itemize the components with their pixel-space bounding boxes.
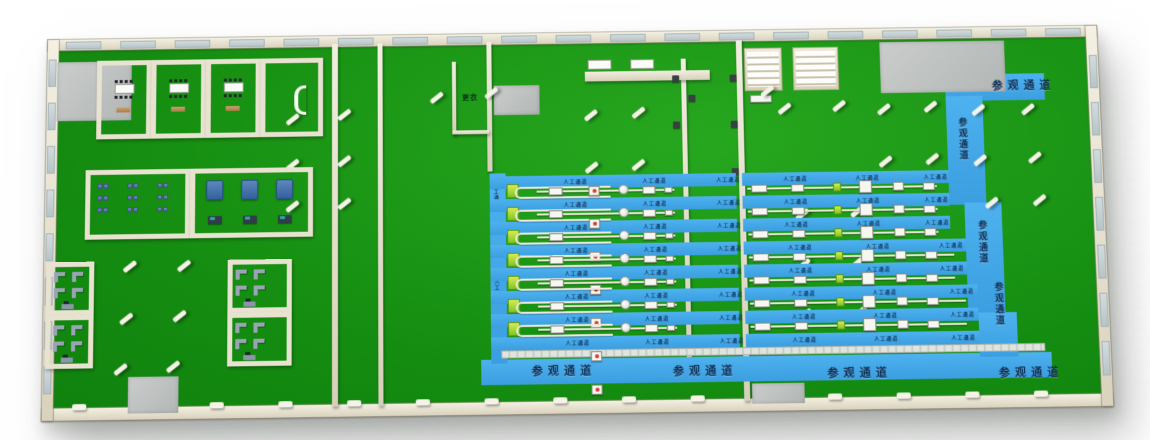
window: [447, 36, 483, 44]
machine: [666, 279, 674, 285]
sideboard: [116, 107, 130, 112]
conveyor-belt: [748, 208, 938, 213]
machine: [645, 324, 658, 332]
window: [1045, 28, 1081, 36]
l-shaped-desk: [53, 341, 64, 345]
tank-machine: [620, 276, 630, 286]
machine-red-indicator: [591, 385, 602, 395]
chair: [115, 80, 118, 83]
machine: [926, 274, 938, 282]
machine-red-indicator: [589, 219, 600, 229]
machine: [925, 251, 937, 259]
machine-green-panel: [833, 183, 841, 192]
visitor-corridor-label: 参观通道: [992, 77, 1056, 94]
wall-post: [278, 401, 292, 407]
l-shaped-desk: [235, 323, 246, 327]
chair: [229, 94, 232, 97]
visitor-corridor-label: 参观通道: [532, 362, 597, 379]
chair: [115, 96, 118, 99]
storage-rack: [97, 196, 102, 201]
storage-rack: [133, 207, 138, 212]
conveyor-belt: [748, 231, 938, 236]
window: [1089, 55, 1098, 88]
conveyor-belt: [749, 277, 955, 282]
wall-post: [416, 399, 430, 405]
pump-machine: [243, 215, 257, 223]
wall-post: [485, 398, 499, 404]
window: [719, 32, 755, 40]
machine: [667, 325, 675, 331]
machine-room: [190, 167, 313, 238]
computer-desk: [243, 355, 255, 360]
chair: [174, 95, 177, 98]
wall-post: [210, 402, 224, 408]
window: [773, 32, 809, 40]
worker-corridor-label: 人工通道: [566, 339, 590, 346]
storage-rack: [103, 196, 108, 201]
chair: [234, 94, 237, 97]
press-machine: [860, 226, 873, 239]
machine: [549, 233, 563, 241]
machine: [550, 325, 564, 333]
window: [556, 35, 592, 43]
chair: [174, 79, 177, 82]
pillar: [166, 360, 181, 373]
worker-corridor-label: 人工通道: [565, 316, 589, 323]
machine: [795, 322, 808, 330]
machine: [667, 302, 675, 308]
wall-post: [828, 393, 842, 399]
machine: [893, 182, 904, 191]
window: [338, 38, 374, 46]
chair: [239, 78, 242, 81]
worker-corridor-strip: [742, 170, 949, 186]
gray-floor-patch: [128, 376, 179, 413]
window: [175, 40, 211, 48]
press-machine: [863, 318, 876, 331]
l-shaped-desk: [253, 323, 264, 327]
worker-corridor-label: 人工通道: [939, 242, 963, 249]
pillar: [1021, 103, 1036, 116]
worker-corridor-label: 人工通道: [645, 338, 669, 345]
chair: [130, 80, 133, 83]
worker-corridor-strip: [746, 331, 980, 347]
worker-corridor-strip: [743, 216, 950, 232]
pillar: [119, 312, 134, 325]
wall-post: [897, 392, 911, 398]
pillar: [337, 155, 352, 168]
worker-corridor-label: 人工通道: [940, 265, 964, 272]
chair: [184, 79, 187, 82]
storage-rack: [97, 184, 102, 189]
pillar: [971, 103, 986, 116]
machine: [550, 279, 564, 287]
wall-post: [965, 391, 979, 397]
chair: [224, 79, 227, 82]
worker-corridor-label: 人工通道: [565, 270, 589, 277]
worker-corridor-label: 人工通道: [564, 178, 588, 185]
pillar: [973, 154, 988, 167]
storage-rack: [97, 208, 102, 213]
machine: [791, 184, 804, 192]
machine: [644, 301, 657, 309]
machine: [753, 253, 769, 261]
machine: [664, 187, 672, 193]
visitor-corridor-label: 参观通道: [955, 117, 970, 161]
storage-rack: [103, 208, 108, 213]
wall-post: [347, 400, 361, 406]
gray-floor-patch: [752, 383, 805, 404]
factory-building: 更衣 参观通道参观通道参观通道参观通道参观通道参观通道参观通道参观通道人工通道人…: [42, 26, 1114, 421]
machine-green-panel: [834, 228, 842, 237]
l-shaped-desk: [235, 339, 246, 343]
conveyor-belt: [749, 254, 954, 259]
tank-machine: [620, 253, 630, 263]
press-machine: [862, 295, 875, 308]
blue-machine: [276, 179, 293, 199]
press-machine: [862, 272, 875, 285]
window: [43, 366, 52, 395]
gray-floor-patch: [494, 85, 540, 115]
worker-corridor-label: 人工通道: [925, 219, 949, 226]
window: [1091, 102, 1100, 136]
chair: [234, 78, 237, 81]
conference-table: [169, 83, 189, 93]
l-shaped-desk: [72, 288, 83, 292]
worker-corridor-label: 人工通道: [718, 245, 742, 252]
worker-corridor-label: 人工通道: [717, 222, 741, 229]
storage-rack: [157, 183, 162, 188]
window: [66, 41, 102, 49]
window: [47, 103, 55, 131]
worker-corridor-label: 人工通道: [950, 287, 974, 294]
reception-room: [260, 58, 323, 137]
worker-corridor-label: 人工通道: [719, 291, 743, 298]
chair: [120, 80, 123, 83]
worker-corridor-label: 人工通道: [564, 247, 588, 254]
window: [1097, 245, 1107, 279]
pillar: [985, 196, 1000, 209]
tank-machine: [619, 207, 629, 217]
window: [610, 34, 646, 42]
machine: [550, 302, 564, 310]
machine-green-panel: [834, 205, 842, 214]
storage-rack: [127, 195, 132, 200]
machine: [665, 210, 673, 216]
worker-corridor-label: 人工通道: [717, 199, 741, 206]
window: [1099, 293, 1109, 327]
machine: [665, 233, 673, 239]
worker-corridor-label: 人工通道: [565, 293, 589, 300]
pillar: [877, 103, 892, 116]
visitor-corridor-label: 参观通道: [975, 220, 990, 264]
window: [1093, 149, 1102, 183]
worker-corridor-label: 人工通道: [645, 315, 669, 322]
visitor-corridor-label: 参观通道: [991, 282, 1006, 326]
l-shaped-desk: [254, 285, 265, 289]
chair: [169, 79, 172, 82]
machine: [792, 207, 805, 215]
tank-machine: [619, 230, 629, 240]
worker-corridor-label: 人工通道: [788, 244, 812, 251]
conference-table: [224, 82, 244, 92]
machine: [792, 230, 805, 238]
window: [828, 31, 864, 39]
machine: [794, 299, 807, 307]
machine: [927, 320, 939, 328]
machine: [643, 232, 656, 240]
machine: [549, 187, 563, 195]
pillar: [113, 363, 128, 376]
machine: [923, 182, 935, 190]
storage-rack: [133, 195, 138, 200]
worker-corridor-label: 人工通道: [783, 175, 807, 182]
wall-post: [1034, 390, 1048, 396]
sideboard: [226, 106, 240, 111]
machine: [549, 256, 563, 264]
l-shaped-desk: [54, 288, 65, 292]
window: [991, 29, 1027, 37]
chair: [120, 96, 123, 99]
pillar: [631, 158, 646, 171]
computer-desk: [244, 302, 256, 307]
pillar: [832, 99, 847, 112]
window: [47, 146, 55, 174]
machine: [923, 205, 935, 213]
machine: [751, 185, 767, 193]
machine-green-panel: [836, 274, 844, 283]
window: [120, 41, 156, 49]
gray-floor-patch: [879, 41, 1006, 94]
l-shaped-desk: [236, 286, 247, 290]
chair: [129, 96, 132, 99]
wall-post: [622, 396, 636, 402]
window: [1101, 341, 1111, 376]
machine: [754, 323, 770, 331]
machine: [642, 186, 655, 194]
pillar: [172, 309, 187, 322]
machine: [927, 297, 939, 305]
pillar: [584, 161, 599, 174]
pillar: [923, 100, 938, 113]
worker-corridor-label: 人工通道: [789, 267, 813, 274]
worker-corridor-label: 人工通道: [791, 290, 815, 297]
l-shaped-desk: [71, 325, 82, 329]
worker-corridor-label: 人工通道: [792, 336, 816, 343]
conveyor-belt: [747, 185, 937, 190]
pillar: [760, 85, 775, 98]
worker-corridor-label: 人工通道: [873, 289, 897, 296]
machine: [643, 209, 656, 217]
worker-corridor-label: 人工通道: [784, 198, 808, 205]
visitor-corridor-label: 参观通道: [673, 362, 738, 379]
window: [229, 39, 265, 47]
storage-rack: [127, 183, 132, 188]
visitor-corridor-label: 参观通道: [827, 364, 892, 381]
machine: [666, 256, 674, 262]
pillar: [631, 106, 646, 119]
worker-corridor-strip: [742, 193, 949, 209]
chair: [224, 94, 227, 97]
l-shaped-desk: [53, 325, 64, 329]
l-shaped-desk: [254, 269, 265, 273]
pillar: [429, 91, 444, 104]
machine: [644, 278, 657, 286]
pillar: [177, 259, 192, 272]
chair: [239, 94, 242, 97]
machine: [896, 296, 907, 305]
window: [1095, 197, 1105, 231]
storage-rack: [133, 183, 138, 188]
meeting-room: [96, 60, 152, 139]
wall-post: [553, 397, 567, 403]
worker-corridor-label: 人工通道: [644, 292, 668, 299]
pillar: [337, 197, 352, 210]
generated-layer: 参观通道参观通道参观通道参观通道参观通道参观通道参观通道参观通道人工通道人工通道…: [42, 26, 1114, 421]
conference-table: [115, 84, 135, 94]
worker-corridor-label: 人工通道: [716, 176, 740, 183]
pillar: [878, 155, 893, 168]
worker-corridor-label: 人工通道: [719, 314, 743, 321]
worker-corridor-label: 人工通道: [564, 224, 588, 231]
storage-rack: [163, 195, 168, 200]
chair: [179, 95, 182, 98]
storage-rack: [103, 184, 108, 189]
window: [283, 38, 319, 46]
pump-machine: [208, 216, 222, 224]
machine-green-panel: [835, 251, 843, 260]
window: [936, 29, 972, 37]
reception-desk: [294, 85, 306, 115]
worker-corridor-label: 人工通道: [720, 337, 744, 344]
pillar: [337, 108, 352, 121]
chair: [124, 96, 127, 99]
machine: [893, 204, 904, 213]
tank-machine: [618, 184, 628, 194]
worker-corridor-label: 人工通道: [643, 200, 667, 207]
window: [45, 233, 53, 261]
machine: [793, 276, 806, 284]
pillar: [777, 102, 792, 115]
press-machine: [861, 249, 874, 262]
wall-post: [72, 404, 86, 410]
window: [882, 30, 918, 38]
worker-corridor-label: 人工通道: [784, 221, 808, 228]
worker-corridor-label: 人工通道: [950, 311, 974, 318]
window: [48, 59, 56, 87]
rack-storage-room: [85, 169, 191, 240]
window: [501, 35, 537, 43]
pump-machine: [278, 215, 292, 223]
worker-corridor-label: 人工通道: [792, 313, 816, 320]
machine-red-indicator: [588, 186, 599, 196]
chair: [179, 79, 182, 82]
machine: [897, 320, 908, 329]
press-machine: [859, 180, 872, 193]
machine: [753, 276, 769, 284]
computer-desk: [62, 304, 74, 309]
window: [664, 33, 700, 41]
l-shaped-desk: [72, 272, 83, 276]
pillar: [584, 109, 599, 122]
machine: [549, 210, 563, 218]
worker-corridor-label: 人工通道: [873, 312, 897, 319]
chair: [169, 95, 172, 98]
chair: [184, 95, 187, 98]
pillar: [122, 260, 137, 273]
pillar: [1028, 151, 1043, 164]
worker-corridor-label: 人工通道: [951, 334, 975, 341]
worker-corridor-label: 人工通道: [643, 223, 667, 230]
tank-machine: [620, 299, 630, 309]
window: [392, 37, 428, 45]
press-machine: [859, 203, 872, 216]
l-shaped-desk: [236, 270, 247, 274]
l-shaped-desk: [253, 339, 264, 343]
worker-corridor-label: 人工通道: [642, 177, 666, 184]
factory-rendering: 更衣 参观通道参观通道参观通道参观通道参观通道参观通道参观通道参观通道人工通道人…: [0, 0, 1150, 440]
machine-green-panel: [837, 320, 845, 329]
machine-red-indicator: [591, 351, 602, 361]
storage-rack: [127, 207, 132, 212]
worker-corridor-strip: [745, 284, 978, 300]
l-shaped-desk: [54, 272, 65, 276]
machine: [793, 253, 806, 261]
machine: [754, 299, 770, 307]
storage-rack: [157, 195, 162, 200]
pillar: [925, 152, 940, 165]
sideboard: [171, 107, 185, 112]
computer-desk: [61, 358, 73, 363]
meeting-room: [206, 59, 261, 138]
machine: [752, 207, 768, 215]
machine: [752, 230, 768, 238]
machine: [644, 255, 657, 263]
storage-rack: [163, 207, 168, 212]
machine-green-panel: [836, 297, 844, 306]
visitor-corridor-label: 参观通道: [999, 364, 1064, 381]
chair: [229, 79, 232, 82]
storage-rack: [157, 207, 162, 212]
blue-machine: [206, 180, 223, 200]
worker-corridor-label: 人工通道: [644, 246, 668, 253]
storage-rack: [163, 183, 168, 188]
worker-corridor-label: 人工通道: [644, 269, 668, 276]
machine: [894, 227, 905, 236]
tank-machine: [621, 322, 631, 332]
machine: [896, 273, 907, 282]
wall-post: [691, 395, 705, 401]
worker-corridor-label: 人工通道: [924, 173, 948, 180]
worker-corridor-label: 人工通道: [718, 268, 742, 275]
worker-corridor-label: 人工通道: [564, 201, 588, 208]
worker-corridor-label: 人工通道: [924, 196, 948, 203]
machine: [924, 228, 936, 236]
worker-corridor-strip: [745, 308, 979, 324]
chair: [125, 80, 128, 83]
machine: [895, 250, 906, 259]
meeting-room: [151, 59, 206, 138]
worker-corridor-label: 人工通道: [874, 335, 898, 342]
window: [46, 189, 54, 217]
l-shaped-desk: [71, 341, 82, 345]
blue-machine: [241, 180, 258, 200]
pillar: [1032, 194, 1047, 207]
